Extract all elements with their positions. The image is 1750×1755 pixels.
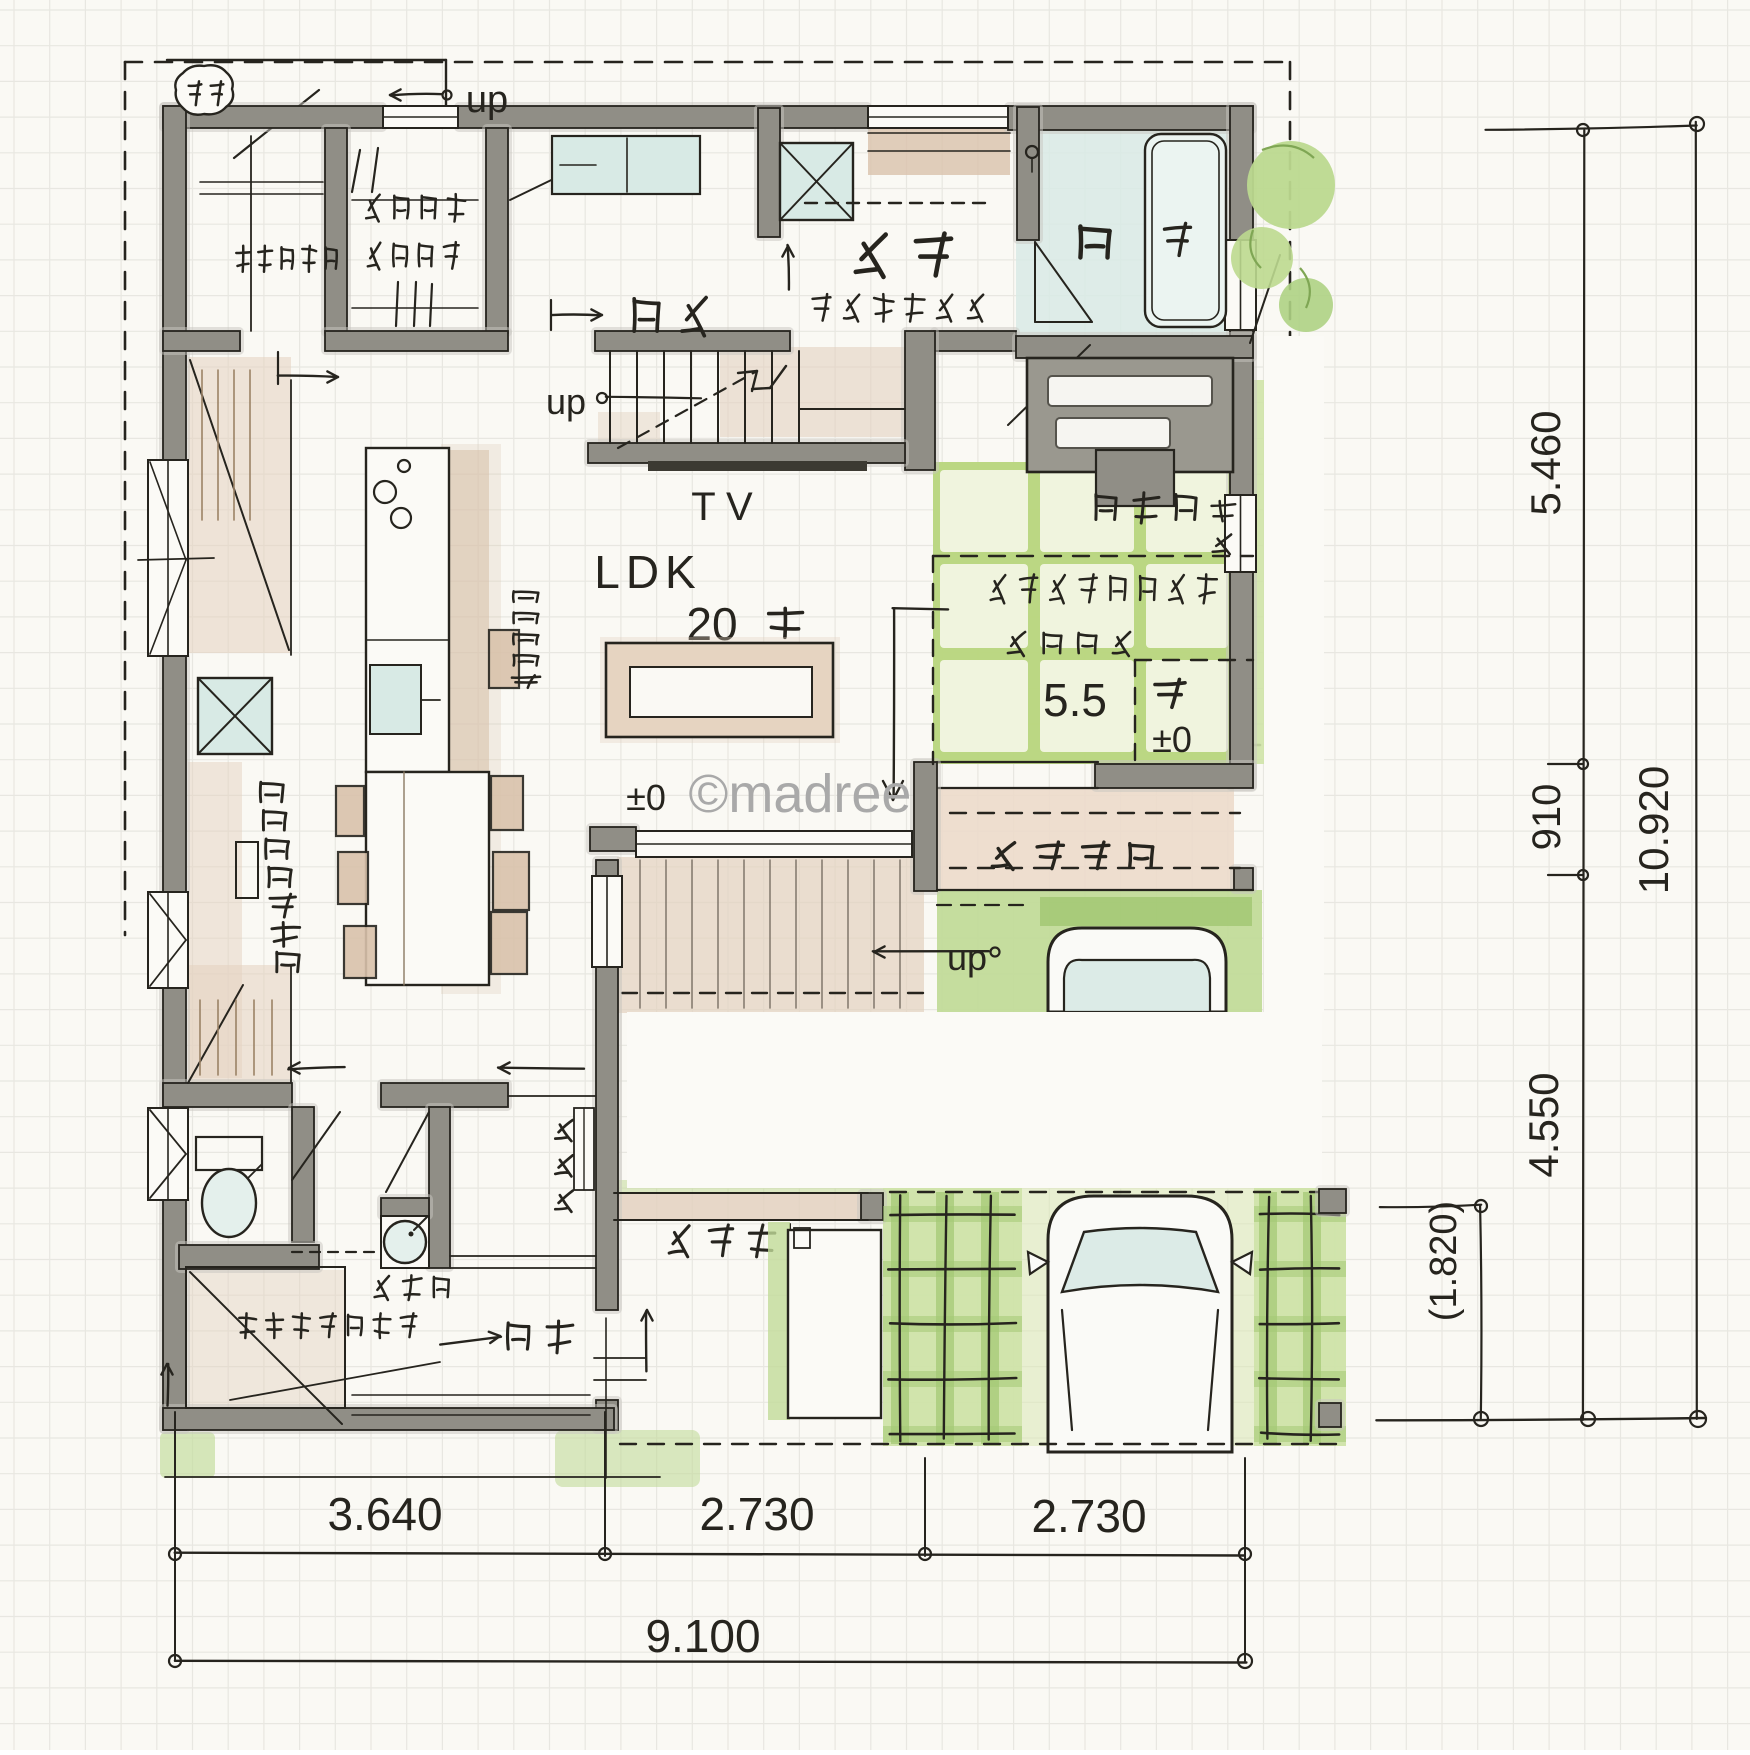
svg-text:T V: T V — [691, 485, 753, 529]
svg-text:up: up — [947, 937, 987, 978]
svg-text:5.5: 5.5 — [1043, 674, 1107, 726]
svg-text:±0: ±0 — [1152, 719, 1192, 760]
svg-text:10.920: 10.920 — [1630, 766, 1677, 894]
svg-text:LDK: LDK — [594, 546, 701, 598]
svg-text:±0: ±0 — [626, 777, 666, 818]
svg-text:up: up — [546, 381, 586, 422]
svg-text:2.730: 2.730 — [1031, 1490, 1146, 1542]
svg-text:5.460: 5.460 — [1522, 410, 1569, 515]
svg-text:3.640: 3.640 — [327, 1488, 442, 1540]
svg-text:910: 910 — [1525, 784, 1569, 851]
svg-text:©madree: ©madree — [689, 764, 912, 824]
svg-text:up: up — [466, 79, 508, 121]
svg-text:4.550: 4.550 — [1520, 1072, 1567, 1177]
svg-text:(1.820): (1.820) — [1423, 1201, 1465, 1321]
svg-text:9.100: 9.100 — [645, 1610, 760, 1662]
svg-text:2.730: 2.730 — [699, 1488, 814, 1540]
